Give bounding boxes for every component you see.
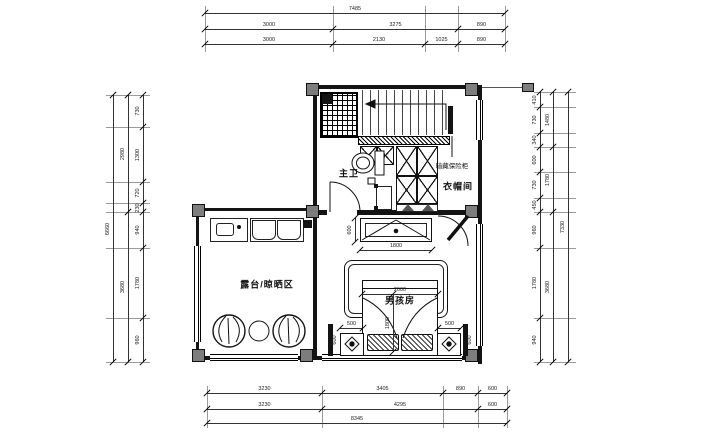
dimension-line bbox=[393, 294, 394, 352]
nightstand-right bbox=[437, 333, 461, 356]
dim-label: 1780 bbox=[135, 277, 141, 289]
dim-label: 720 bbox=[135, 188, 141, 197]
column bbox=[192, 204, 205, 217]
dim-label: 1780 bbox=[532, 277, 538, 289]
plant-stem bbox=[228, 318, 229, 344]
dimension-line bbox=[143, 95, 144, 362]
dimension-line bbox=[207, 393, 507, 394]
dim-label: 600 bbox=[347, 225, 353, 234]
small-pot bbox=[249, 321, 269, 341]
column bbox=[306, 83, 319, 96]
terrace-item bbox=[303, 220, 312, 228]
window-terrace-left bbox=[194, 246, 201, 342]
dim-label: 600 bbox=[488, 386, 497, 392]
wall-under-stair bbox=[358, 136, 450, 145]
dim-label: 2130 bbox=[373, 37, 385, 43]
window-right-upper bbox=[476, 100, 483, 140]
desk-inner bbox=[365, 223, 427, 237]
sink-basin bbox=[216, 223, 234, 236]
dim-label: 450 bbox=[532, 200, 538, 209]
dimension-line bbox=[205, 13, 505, 14]
dimension-line bbox=[128, 95, 129, 362]
column bbox=[465, 83, 478, 96]
dim-label: 340 bbox=[532, 135, 538, 144]
dim-label: 8345 bbox=[351, 416, 363, 422]
bedroom-door-leaf bbox=[448, 216, 468, 240]
dim-label: 3680 bbox=[120, 281, 126, 293]
column bbox=[306, 205, 319, 218]
dimension-line bbox=[553, 92, 554, 362]
dim-label: 3000 bbox=[263, 22, 275, 28]
stair-treads bbox=[362, 90, 450, 135]
dim-label: 600 bbox=[467, 335, 473, 344]
nightstand-left bbox=[340, 333, 364, 356]
dim-label: 600 bbox=[488, 402, 497, 408]
dimension-line bbox=[355, 218, 356, 242]
column-stub-right bbox=[522, 83, 534, 92]
plan-detail-overlay bbox=[0, 0, 702, 438]
plant-leaf bbox=[233, 317, 239, 342]
wall-top bbox=[313, 85, 482, 89]
dim-label: 7485 bbox=[349, 6, 361, 12]
annotation-hidden-safe: 暗藏保险柜 bbox=[436, 160, 469, 170]
bath-door-arc bbox=[330, 182, 360, 212]
plant-pot bbox=[213, 315, 245, 347]
dim-tick bbox=[428, 246, 435, 253]
dim-label: 890 bbox=[477, 37, 486, 43]
dim-label: 960 bbox=[532, 225, 538, 234]
plant-leaf bbox=[279, 316, 286, 342]
room-label-master-bath: 主卫 bbox=[339, 167, 359, 180]
dim-tick bbox=[351, 238, 358, 245]
plant-leaf bbox=[293, 317, 299, 342]
dim-label: 960 bbox=[135, 335, 141, 344]
room-label-cloakroom: 衣帽间 bbox=[443, 180, 473, 193]
window-terrace-bottom bbox=[210, 354, 298, 361]
wall-bedroom-left bbox=[313, 214, 317, 360]
cabinet-cell bbox=[377, 146, 394, 165]
dim-label: 730 bbox=[135, 106, 141, 115]
plant-pot bbox=[273, 315, 305, 347]
floor-plan-canvas: 主卫 衣帽间 暗藏保险柜 男孩房 露台/晾晒区 600 600 74853000… bbox=[0, 0, 702, 438]
cabinet-cell bbox=[360, 146, 377, 165]
dim-label: 1025 bbox=[435, 37, 447, 43]
pillow-right bbox=[401, 334, 433, 351]
dim-label: 7330 bbox=[560, 221, 566, 233]
dim-label: 3680 bbox=[545, 281, 551, 293]
wardrobe-cell bbox=[396, 146, 417, 176]
bedroom-door-arc bbox=[438, 216, 468, 246]
dim-label: 600 bbox=[532, 155, 538, 164]
column bbox=[300, 349, 313, 362]
room-label-terrace: 露台/晾晒区 bbox=[240, 278, 294, 291]
dim-label: 3405 bbox=[376, 386, 388, 392]
wall-left-upper bbox=[313, 85, 317, 214]
dimension-line bbox=[362, 294, 438, 295]
dim-label: 230 bbox=[135, 203, 141, 212]
washer-unit bbox=[252, 220, 276, 240]
dim-label: 4295 bbox=[394, 402, 406, 408]
dimension-line bbox=[113, 95, 114, 362]
dimension-line bbox=[205, 44, 505, 45]
dim-label: 3000 bbox=[263, 37, 275, 43]
shelf-triangle bbox=[402, 204, 414, 211]
dim-label: 500 bbox=[445, 321, 454, 327]
dim-label: 940 bbox=[135, 225, 141, 234]
dim-label: 730 bbox=[532, 115, 538, 124]
dim-label: 1800 bbox=[390, 243, 402, 249]
door-jamb bbox=[374, 184, 378, 188]
window-right-lower bbox=[476, 224, 483, 346]
door-jamb bbox=[374, 206, 378, 210]
dim-label: 3230 bbox=[258, 386, 270, 392]
wall-terrace-top bbox=[196, 208, 317, 211]
eave-line bbox=[482, 87, 524, 88]
dim-label: 3230 bbox=[258, 402, 270, 408]
dim-label: 6660 bbox=[105, 222, 111, 234]
plant-stem bbox=[288, 318, 289, 344]
dim-label: 1800 bbox=[385, 317, 391, 329]
plant-leaf bbox=[219, 316, 226, 342]
wardrobe-cell bbox=[417, 176, 438, 204]
dim-label: 730 bbox=[532, 180, 538, 189]
dimension-line bbox=[205, 29, 505, 30]
column bbox=[192, 349, 205, 362]
shaft-corner bbox=[322, 94, 332, 104]
dim-label: 890 bbox=[456, 386, 465, 392]
dim-label: 940 bbox=[532, 335, 538, 344]
dim-label: 1480 bbox=[545, 113, 551, 125]
dimension-line bbox=[207, 423, 507, 424]
washer-unit bbox=[277, 220, 301, 240]
dim-label: 600 bbox=[332, 335, 338, 344]
dim-label: 1300 bbox=[135, 148, 141, 160]
shelf-triangle bbox=[422, 204, 434, 211]
dimension-line bbox=[360, 250, 432, 251]
column bbox=[465, 205, 478, 218]
dimension-line bbox=[568, 92, 569, 362]
dim-label: 500 bbox=[347, 321, 356, 327]
dim-label: 410 bbox=[532, 95, 538, 104]
dim-label: 2980 bbox=[120, 147, 126, 159]
wardrobe-cell bbox=[396, 176, 417, 204]
dim-label: 1780 bbox=[545, 173, 551, 185]
bath-door-panel bbox=[376, 186, 392, 210]
dim-label: 3275 bbox=[389, 22, 401, 28]
dim-label: 890 bbox=[477, 22, 486, 28]
dimension-line bbox=[207, 409, 507, 410]
